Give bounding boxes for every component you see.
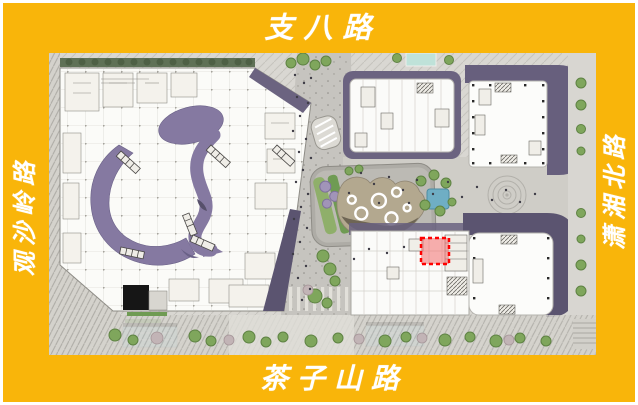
site-plan-image	[49, 53, 596, 355]
mall-annex	[149, 291, 167, 310]
southeast-building	[351, 231, 553, 315]
road-label-west: 观沙岭路	[14, 156, 38, 276]
highlight-marker	[421, 238, 449, 264]
cyan-patch	[406, 53, 436, 66]
road-label-north: 支八路	[264, 15, 381, 44]
mall-core-black	[123, 285, 149, 310]
yellow-frame: 支八路 茶子山路 观沙岭路 潇湘北路	[3, 3, 635, 402]
north-retail-building	[343, 71, 461, 159]
road-label-east: 潇湘北路	[604, 130, 628, 250]
mall-roof-trees	[60, 58, 255, 67]
mall-building	[60, 58, 311, 316]
right-road	[568, 53, 596, 315]
northeast-tower	[469, 81, 547, 167]
southeast-tower	[469, 233, 553, 315]
location-map: 支八路 茶子山路 观沙岭路 潇湘北路	[0, 0, 638, 405]
stairs-corner	[573, 319, 596, 349]
mall-green-bar	[127, 312, 167, 316]
road-label-south: 茶子山路	[260, 366, 408, 394]
